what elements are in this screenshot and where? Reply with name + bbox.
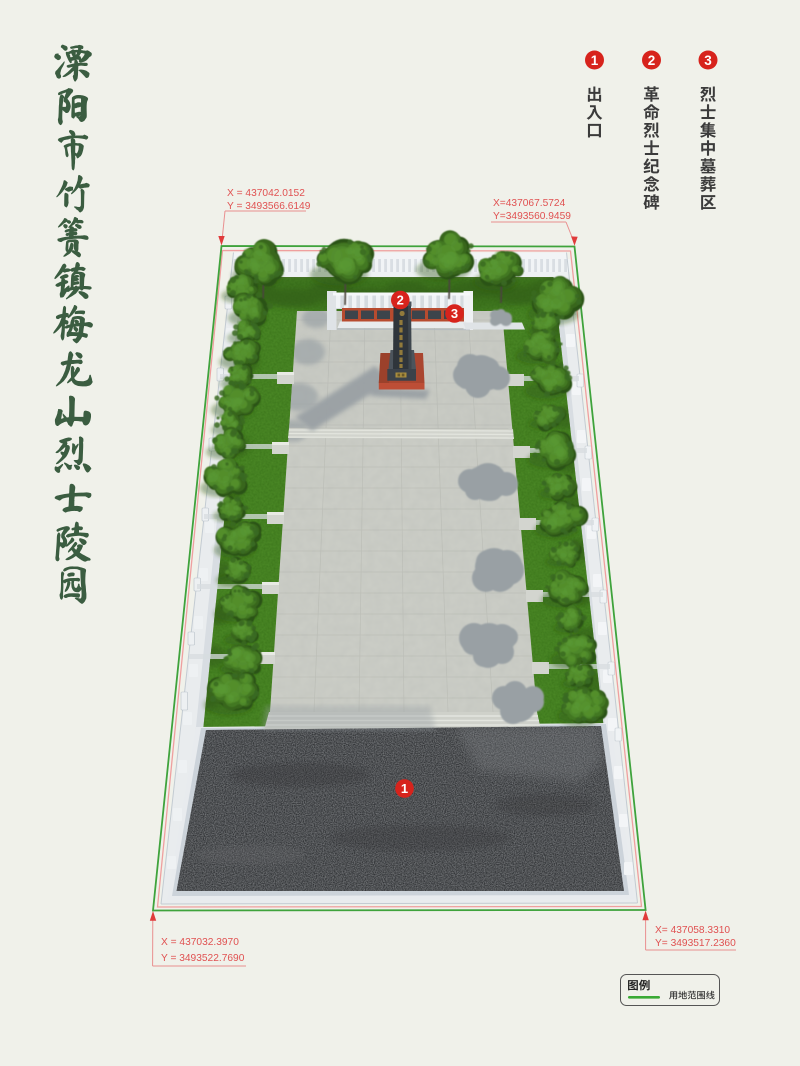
svg-text:Y = 3493566.6149: Y = 3493566.6149 (227, 201, 311, 212)
svg-text:Y= 3493517.2360: Y= 3493517.2360 (655, 938, 736, 949)
svg-text:2: 2 (397, 293, 404, 308)
svg-text:1: 1 (591, 53, 599, 68)
svg-text:Y = 3493522.7690: Y = 3493522.7690 (161, 953, 245, 964)
svg-text:1: 1 (401, 781, 408, 796)
svg-text:3: 3 (704, 53, 712, 68)
svg-text:2: 2 (648, 53, 656, 68)
svg-text:X=437067.5724: X=437067.5724 (493, 198, 566, 209)
svg-text:Y=3493560.9459: Y=3493560.9459 (493, 211, 571, 222)
svg-text:X = 437042.0152: X = 437042.0152 (227, 188, 305, 199)
svg-text:3: 3 (451, 306, 458, 321)
svg-text:X= 437058.3310: X= 437058.3310 (655, 925, 730, 936)
svg-text:X = 437032.3970: X = 437032.3970 (161, 937, 239, 948)
